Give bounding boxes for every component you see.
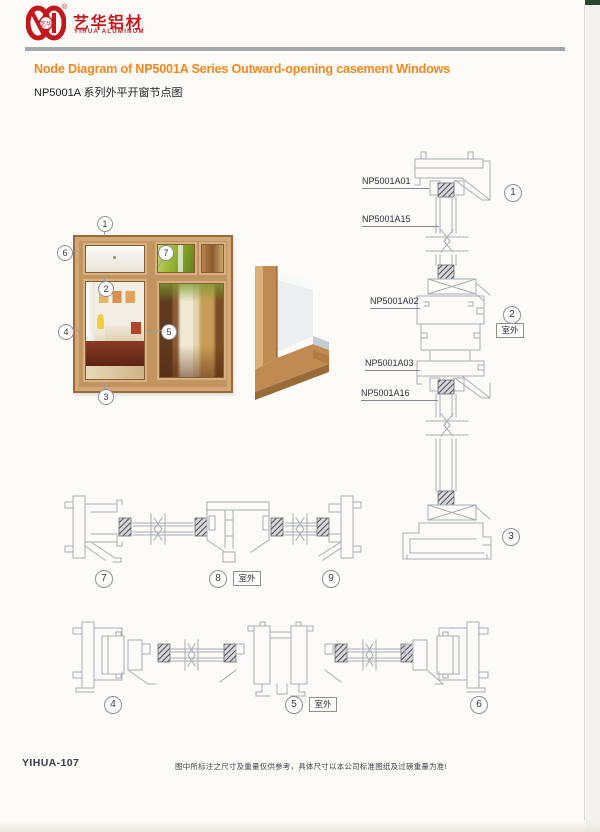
- callout-circle-m7: 7: [95, 570, 113, 588]
- callout-circle-v3: 3: [502, 528, 520, 546]
- glass-unit-upper: [426, 183, 468, 279]
- lower-sash-bottom-profile: [428, 505, 490, 520]
- corner-profile-image: [243, 266, 337, 402]
- photo-wood-panel: [86, 341, 144, 366]
- callout-circle-b6: 6: [470, 696, 488, 714]
- sash-bottom-profile: [428, 279, 490, 301]
- label-np5001a02: NP5001A02: [370, 296, 420, 309]
- left-sash-profile: [128, 640, 156, 684]
- callout-circle-1: 1: [97, 216, 113, 232]
- footer-page-code: YIHUA-107: [22, 757, 79, 769]
- photo-lamp: [97, 314, 104, 329]
- glass-run-b2: [325, 640, 413, 682]
- callout-circle-3: 3: [98, 389, 114, 405]
- photo-rug: [86, 366, 144, 379]
- callout-circle-6: 6: [57, 245, 73, 261]
- sill-profile: [403, 523, 491, 559]
- label-np5001a15: NP5001A15: [362, 214, 439, 227]
- scan-corner-green: [585, 0, 600, 5]
- callout-circle-5: 5: [161, 324, 177, 340]
- registered-mark: ®: [62, 4, 67, 11]
- scan-page-edge: [584, 5, 585, 820]
- label-np5001a16: NP5001A16: [361, 388, 438, 401]
- callout-circle-2: 2: [98, 281, 114, 297]
- photo-shadow: [160, 345, 223, 377]
- middle-section-drawing: [55, 490, 367, 568]
- label-np5001a03: NP5001A03: [365, 358, 420, 371]
- footer-disclaimer: 图中所标注之尺寸及重量仅供参考，具体尺寸以本公司标准图纸及过磅重量为准!: [175, 761, 447, 772]
- scan-bottom-shade: [0, 820, 600, 832]
- page-title-cn: NP5001A 系列外平开窗节点图: [34, 84, 183, 100]
- callout-circle-v2: 2: [503, 306, 521, 324]
- callout-circle-4: 4: [58, 324, 74, 340]
- callout-circle-b4: 4: [104, 696, 122, 714]
- glass-run-1: [119, 514, 207, 544]
- left-jamb-profile: [65, 496, 122, 562]
- center-frame-profiles: [248, 622, 313, 696]
- photo-cushion: [131, 322, 141, 334]
- outdoor-badge-m: 室外: [233, 571, 261, 586]
- page-title-en: Node Diagram of NP5001A Series Outward-o…: [34, 61, 450, 76]
- callout-circle-v1: 1: [504, 184, 522, 202]
- outdoor-badge-v: 室外: [496, 323, 524, 338]
- photo-green-wall: [160, 284, 223, 302]
- label-np5001a01: NP5001A01: [362, 176, 429, 189]
- callout-circle-m9: 9: [322, 570, 340, 588]
- bottom-section-drawing: [58, 618, 503, 706]
- window-pane-left: [85, 281, 145, 380]
- glass-reflection: [178, 245, 183, 272]
- brand-name-en: YIHUA ALUMINUM: [74, 29, 145, 35]
- callout-circle-m8: 8: [209, 570, 227, 588]
- glass-run-b1: [158, 640, 244, 682]
- ceiling-light: [113, 256, 116, 259]
- scan-page-margin: [586, 0, 600, 832]
- catalog-page: 艺华 ® 艺华铝材 YIHUA ALUMINUM Node Diagram of…: [0, 0, 600, 832]
- window-pane-transom-right: [201, 244, 224, 273]
- glass-run-2: [271, 514, 329, 544]
- leader-line: [146, 330, 161, 331]
- left-frame-profile: [73, 622, 124, 692]
- outdoor-badge-b: 室外: [309, 697, 337, 712]
- svg-text:艺华: 艺华: [40, 20, 52, 28]
- window-illustration: [73, 235, 233, 393]
- header-rule: [25, 47, 565, 51]
- center-mullion-profile: [207, 502, 269, 562]
- right-frame-profile: [437, 622, 488, 692]
- callout-circle-b5: 5: [285, 696, 303, 714]
- window-pane-transom-left: [85, 245, 145, 273]
- yihua-logo-icon: 艺华: [26, 5, 66, 42]
- callout-circle-7: 7: [158, 245, 174, 261]
- mid-transom-profiles: [417, 296, 484, 376]
